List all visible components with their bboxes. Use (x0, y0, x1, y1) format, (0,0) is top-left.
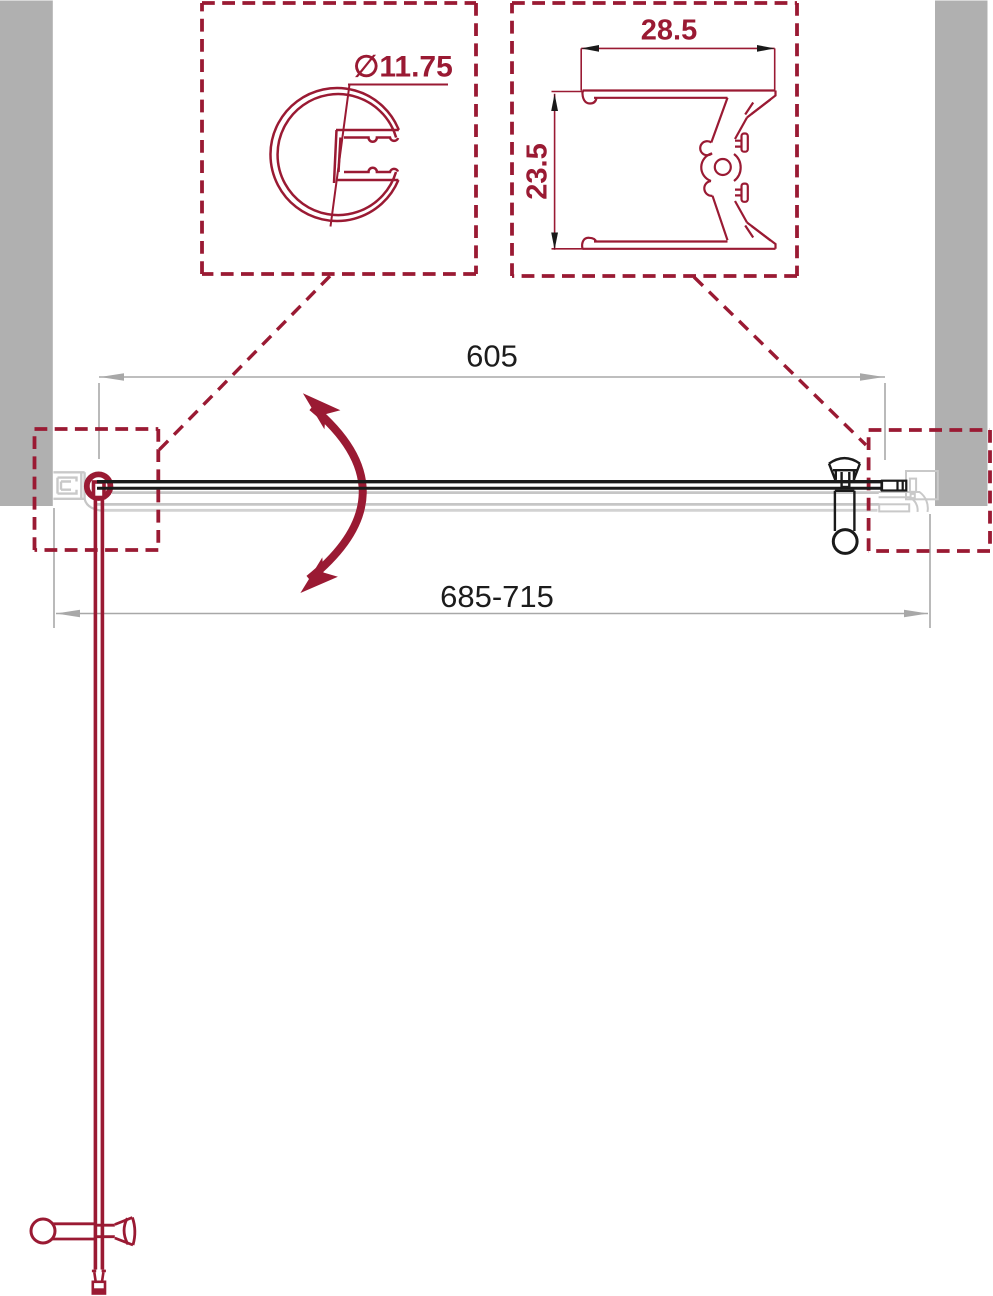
svg-text:∅11.75: ∅11.75 (353, 51, 453, 84)
svg-text:23.5: 23.5 (522, 143, 554, 199)
svg-text:605: 605 (466, 339, 518, 374)
svg-text:28.5: 28.5 (641, 15, 697, 47)
svg-text:685-715: 685-715 (440, 579, 554, 614)
